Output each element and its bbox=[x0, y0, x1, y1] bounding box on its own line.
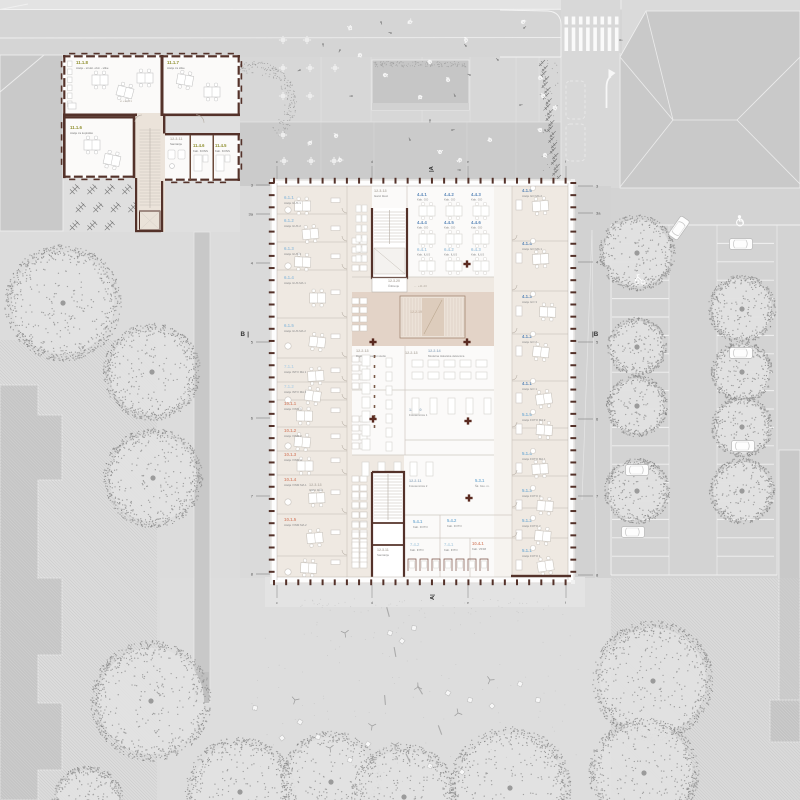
svg-text:11.1.8: 11.1.8 bbox=[76, 60, 89, 65]
svg-text:f: f bbox=[565, 601, 566, 605]
svg-text:d: d bbox=[371, 160, 373, 164]
svg-text:Atelje INTO MA 2: Atelje INTO MA 2 bbox=[284, 390, 307, 394]
svg-text:Kab. GO: Kab. GO bbox=[417, 198, 429, 202]
svg-text:f: f bbox=[565, 160, 566, 164]
svg-text:6.4.3: 6.4.3 bbox=[471, 247, 481, 252]
svg-text:6.1.3: 6.1.3 bbox=[284, 246, 294, 251]
svg-text:12.3.20: 12.3.20 bbox=[388, 279, 400, 283]
svg-text:6.1.4: 6.1.4 bbox=[284, 275, 294, 280]
svg-text:Kab. KONS: Kab. KONS bbox=[215, 149, 230, 153]
svg-text:Kab. INTO: Kab. INTO bbox=[444, 548, 458, 552]
svg-text:Kab. GO: Kab. GO bbox=[444, 198, 456, 202]
svg-text:Kab. FOTO: Kab. FOTO bbox=[447, 524, 462, 528]
svg-text:Gard. štud.: Gard. štud. bbox=[309, 488, 323, 492]
svg-text:Atelje GO 2: Atelje GO 2 bbox=[522, 340, 537, 344]
svg-text:10.1.3: 10.1.3 bbox=[284, 452, 297, 457]
svg-text:A|: A| bbox=[430, 594, 436, 600]
svg-text:Atelje VINM MA 2: Atelje VINM MA 2 bbox=[284, 523, 307, 527]
svg-text:Kab. ILUS: Kab. ILUS bbox=[417, 253, 430, 257]
svg-text:Kab. FOTO: Kab. FOTO bbox=[413, 525, 428, 529]
svg-text:e: e bbox=[467, 601, 469, 605]
svg-text:Čiščenje: Čiščenje bbox=[388, 283, 399, 288]
svg-text:Kab. GO: Kab. GO bbox=[471, 198, 483, 202]
svg-text:3a: 3a bbox=[596, 211, 601, 216]
svg-text:12.3.13: 12.3.13 bbox=[309, 483, 322, 487]
svg-text:B: B bbox=[241, 331, 246, 338]
svg-text:Atelje INTO MA 1: Atelje INTO MA 1 bbox=[284, 370, 307, 374]
svg-text:Atelje VINM 3: Atelje VINM 3 bbox=[284, 458, 302, 462]
svg-text:12.2.19: 12.2.19 bbox=[410, 310, 422, 314]
svg-text:6.1.1: 6.1.1 bbox=[284, 195, 294, 200]
svg-text:4.4.4: 4.4.4 bbox=[417, 220, 427, 225]
svg-text:5.3.1: 5.3.1 bbox=[475, 478, 485, 483]
svg-text:11.1.7: 11.1.7 bbox=[167, 60, 180, 65]
svg-text:Modelna tiskarska delavnica: Modelna tiskarska delavnica bbox=[428, 354, 465, 358]
svg-text:7.1.2: 7.1.2 bbox=[284, 384, 294, 389]
svg-text:Sanitarije: Sanitarije bbox=[377, 553, 389, 557]
svg-text:Atelja VINM MA 1: Atelja VINM MA 1 bbox=[284, 483, 307, 487]
svg-text:Atelje FOTO 1: Atelje FOTO 1 bbox=[522, 554, 541, 558]
svg-text:e: e bbox=[467, 160, 469, 164]
svg-text:Kab. ILUS: Kab. ILUS bbox=[471, 253, 484, 257]
svg-text:Kab. VINM: Kab. VINM bbox=[472, 547, 487, 551]
svg-text:Atelje GO MA 1: Atelje GO MA 1 bbox=[522, 247, 542, 251]
svg-text:Atelje VINM 2: Atelje VINM 2 bbox=[284, 434, 302, 438]
svg-text:Atelje ILUS MA 2: Atelje ILUS MA 2 bbox=[284, 329, 306, 333]
svg-text:12.2.11: 12.2.11 bbox=[409, 479, 421, 483]
svg-text:Šk. foto. m.: Šk. foto. m. bbox=[475, 483, 490, 488]
svg-text:4.4.2: 4.4.2 bbox=[444, 192, 454, 197]
svg-text:Atelje ILUS MA 1: Atelje ILUS MA 1 bbox=[284, 281, 306, 285]
svg-text:Kab. INTO: Kab. INTO bbox=[410, 548, 424, 552]
svg-text:10.1.2: 10.1.2 bbox=[284, 428, 297, 433]
svg-text:6.1.2: 6.1.2 bbox=[284, 218, 294, 223]
svg-text:Atelje GO 1: Atelje GO 1 bbox=[522, 387, 537, 391]
svg-text:12.3.11: 12.3.11 bbox=[170, 137, 182, 141]
svg-text:Atelje GO 3: Atelje GO 3 bbox=[522, 300, 537, 304]
svg-text:10.1.4: 10.1.4 bbox=[284, 477, 297, 482]
svg-text:6.4.1: 6.4.1 bbox=[417, 247, 427, 252]
svg-text:3a: 3a bbox=[249, 212, 254, 217]
svg-text:Digitalni tiskarski studio: Digitalni tiskarski studio bbox=[356, 354, 386, 358]
svg-text:11.1.6: 11.1.6 bbox=[70, 125, 83, 130]
svg-text:5.4.1: 5.4.1 bbox=[413, 519, 423, 524]
svg-text:4.4.5: 4.4.5 bbox=[444, 220, 454, 225]
svg-text:4.4.6: 4.4.6 bbox=[471, 220, 481, 225]
svg-text:Kab. GO: Kab. GO bbox=[417, 226, 429, 230]
svg-text:12.2.13: 12.2.13 bbox=[405, 351, 418, 355]
svg-text:10.4.1: 10.4.1 bbox=[472, 541, 484, 546]
svg-text:Atelje ILUS 1: Atelje ILUS 1 bbox=[284, 201, 301, 205]
svg-text:Fototemnica 2: Fototemnica 2 bbox=[409, 484, 428, 488]
svg-text:7.1.1: 7.1.1 bbox=[284, 364, 294, 369]
svg-text:5.4.2: 5.4.2 bbox=[447, 518, 457, 523]
svg-text:10.1.5: 10.1.5 bbox=[284, 517, 297, 522]
svg-text:c: c bbox=[276, 601, 278, 605]
svg-text:12.2.13: 12.2.13 bbox=[356, 349, 369, 353]
svg-text:c: c bbox=[276, 160, 278, 164]
svg-text:Atelje - strukt. obd. - slike: Atelje - strukt. obd. - slike bbox=[76, 66, 109, 70]
svg-text:12.3.11: 12.3.11 bbox=[377, 548, 389, 552]
svg-text:12.3.13: 12.3.13 bbox=[374, 189, 387, 193]
svg-text:Kab. GO: Kab. GO bbox=[444, 226, 456, 230]
svg-text:Kab. ILUS: Kab. ILUS bbox=[444, 253, 457, 257]
svg-text:Sanitarije: Sanitarije bbox=[170, 142, 182, 146]
svg-text:7.4.1: 7.4.1 bbox=[444, 542, 454, 547]
svg-text:7.4.2: 7.4.2 bbox=[410, 542, 420, 547]
svg-text:|: | bbox=[247, 331, 249, 338]
svg-text:6.4.2: 6.4.2 bbox=[444, 247, 454, 252]
svg-text:10.1.1: 10.1.1 bbox=[284, 401, 297, 406]
svg-text:4.4.3: 4.4.3 bbox=[471, 192, 481, 197]
svg-text:Atelje GO MA 2: Atelje GO MA 2 bbox=[522, 194, 542, 198]
svg-text:4.4.1: 4.4.1 bbox=[417, 192, 427, 197]
svg-text:Atelje ILUS 2: Atelje ILUS 2 bbox=[284, 224, 301, 228]
svg-text:Atelje VINM 1: Atelje VINM 1 bbox=[284, 407, 302, 411]
svg-text:Atelje FOTO 3: Atelje FOTO 3 bbox=[522, 494, 541, 498]
svg-text:|B: |B bbox=[592, 331, 599, 338]
svg-text:Gard. štud.: Gard. štud. bbox=[374, 194, 388, 198]
svg-text:Atelje ILUS 3: Atelje ILUS 3 bbox=[284, 252, 301, 256]
svg-text:Kab. KONS: Kab. KONS bbox=[193, 149, 208, 153]
svg-text:Atelje za kopistiko: Atelje za kopistiko bbox=[70, 131, 94, 135]
svg-text:6.1.5: 6.1.5 bbox=[284, 323, 294, 328]
svg-text:12.2.14: 12.2.14 bbox=[428, 349, 442, 353]
svg-text:11.4.5: 11.4.5 bbox=[215, 143, 227, 148]
svg-text:⌀ +13.51: ⌀ +13.51 bbox=[120, 99, 132, 103]
svg-text:|A: |A bbox=[429, 165, 435, 172]
svg-text:Atelje za slike: Atelje za slike bbox=[167, 66, 185, 70]
svg-text:11.4.6: 11.4.6 bbox=[193, 143, 205, 148]
svg-text:d: d bbox=[371, 601, 373, 605]
svg-text:← +11.20: ← +11.20 bbox=[414, 284, 427, 288]
svg-text:Kab. GO: Kab. GO bbox=[471, 226, 483, 230]
